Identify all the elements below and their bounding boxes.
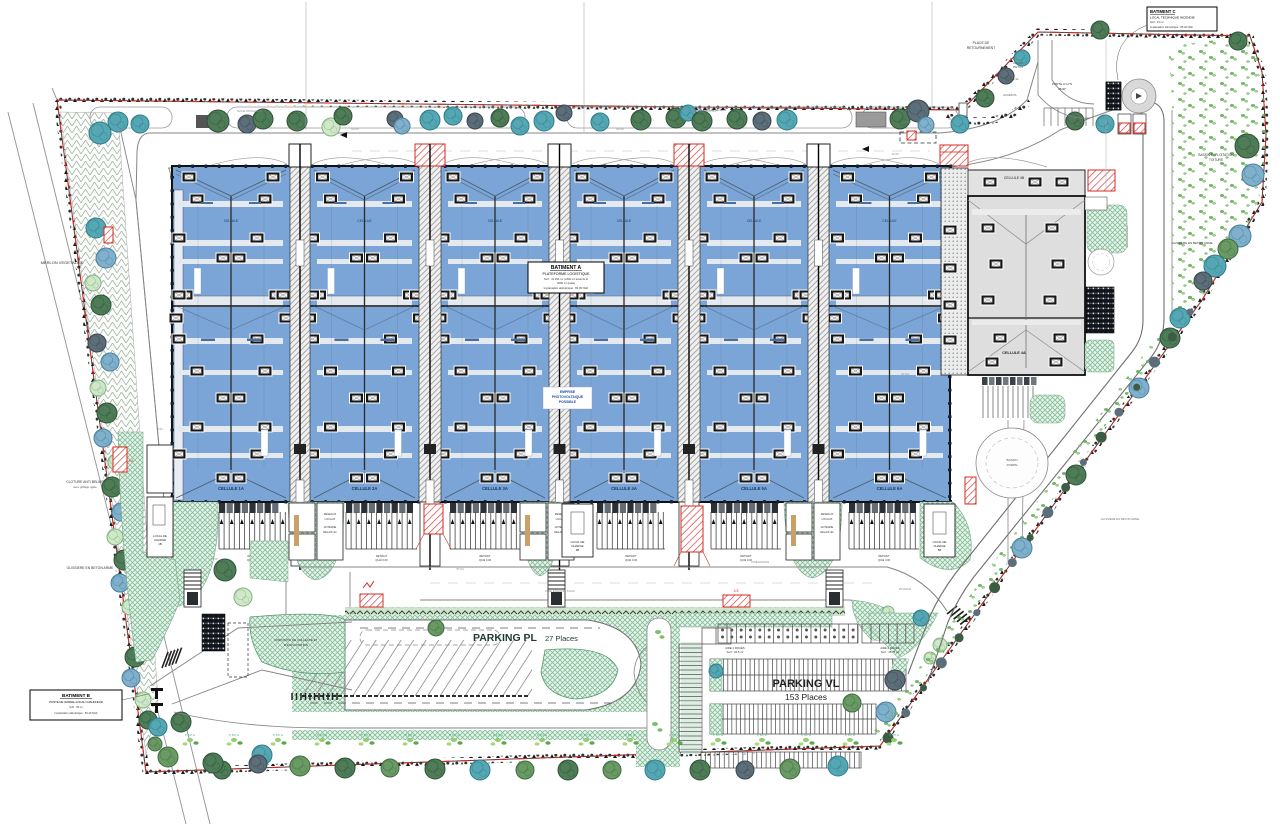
svg-text:PARKING VL: PARKING VL xyxy=(772,678,839,690)
svg-text:CELLULE: CELLULE xyxy=(617,219,631,223)
svg-text:13.60: 13.60 xyxy=(211,557,218,561)
svg-text:CELLULE 1A: CELLULE 1A xyxy=(218,486,244,491)
svg-text:57.04: 57.04 xyxy=(901,372,909,376)
svg-text:P 8 P A: P 8 P A xyxy=(493,733,503,737)
svg-text:LOCAUX: LOCAUX xyxy=(822,517,833,521)
svg-text:P 8 P A: P 8 P A xyxy=(757,733,767,737)
svg-text:ANTENNE: ANTENNE xyxy=(821,525,834,529)
svg-text:CELLULE: CELLULE xyxy=(882,219,896,223)
svg-text:POMPE: POMPE xyxy=(1007,463,1018,467)
svg-text:Implantation altimétrique : 83: Implantation altimétrique : 83.35 NGF xyxy=(544,286,589,290)
svg-text:CELLULE 4B: CELLULE 4B xyxy=(1004,176,1025,180)
svg-text:LOCAUX: LOCAUX xyxy=(325,517,336,521)
svg-text:CELLULE 4A: CELLULE 4A xyxy=(1002,351,1026,355)
svg-text:Implantation altimétrique : 85: Implantation altimétrique : 85.40 NGF xyxy=(1150,25,1194,29)
svg-text:P 8 P A: P 8 P A xyxy=(581,733,591,737)
svg-text:BATIMENT C: BATIMENT C xyxy=(1150,9,1176,14)
svg-text:BASSIN: BASSIN xyxy=(1006,458,1017,462)
svg-text:Implantation altimétrique : 83: Implantation altimétrique : 83.40 NGF xyxy=(54,711,98,715)
svg-text:Surf : 35 m²: Surf : 35 m² xyxy=(69,705,83,709)
svg-text:P 8 P A: P 8 P A xyxy=(669,733,679,737)
svg-text:TOITURE: TOITURE xyxy=(1209,158,1223,162)
svg-text:BASSIN EXPLOITATION: BASSIN EXPLOITATION xyxy=(1198,153,1234,157)
svg-text:PORTE A GYN: PORTE A GYN xyxy=(1052,82,1072,86)
svg-text:BATIMENT A: BATIMENT A xyxy=(551,265,582,271)
svg-text:RESEAUX: RESEAUX xyxy=(324,512,337,516)
svg-text:ACCES PL: ACCES PL xyxy=(1003,93,1017,97)
svg-text:CELLULE 4A: CELLULE 4A xyxy=(611,486,637,491)
svg-text:VOIE ENGINS - 6.00m: VOIE ENGINS - 6.00m xyxy=(545,589,576,593)
svg-text:GLISSIERE EN BETON ARME: GLISSIERE EN BETON ARME xyxy=(67,566,114,570)
svg-text:GLISSIERE EN BETON ARME: GLISSIERE EN BETON ARME xyxy=(1101,517,1140,521)
svg-text:EMPRISE: EMPRISE xyxy=(560,390,576,394)
svg-text:RELAIS 4G: RELAIS 4G xyxy=(820,530,833,534)
svg-text:P 8 P A: P 8 P A xyxy=(449,733,459,737)
svg-text:CELLULE: CELLULE xyxy=(357,219,371,223)
svg-text:P 8 P A: P 8 P A xyxy=(405,733,415,737)
svg-text:PLACE DE: PLACE DE xyxy=(973,41,991,45)
svg-text:NOUE PAYSAGERE: NOUE PAYSAGERE xyxy=(237,109,263,113)
svg-text:avec grillage rigide: avec grillage rigide xyxy=(73,485,97,489)
svg-text:CELLULE 3A: CELLULE 3A xyxy=(482,486,508,491)
svg-text:BASSIN EXPLOITATION: BASSIN EXPLOITATION xyxy=(685,109,716,113)
svg-text:RETRAIT: RETRAIT xyxy=(376,554,388,558)
svg-text:RELAIS 4G: RELAIS 4G xyxy=(323,530,336,534)
svg-text:QUAI 0.00: QUAI 0.00 xyxy=(878,558,891,562)
svg-text:RETRAIT: RETRAIT xyxy=(479,554,491,558)
svg-text:P 8 P A: P 8 P A xyxy=(713,733,723,737)
svg-text:ACCES VL: ACCES VL xyxy=(1005,77,1019,81)
svg-text:CELLULE 5A: CELLULE 5A xyxy=(741,486,767,491)
svg-text:P 8 P A: P 8 P A xyxy=(889,733,899,737)
svg-text:CELLULE: CELLULE xyxy=(488,219,502,223)
svg-text:CELLULE: CELLULE xyxy=(224,219,238,223)
svg-text:P 8 P A: P 8 P A xyxy=(273,733,283,737)
svg-text:4000 m² quais): 4000 m² quais) xyxy=(557,281,575,285)
svg-text:CELLULE: CELLULE xyxy=(747,219,761,223)
svg-text:QUAI 0.00: QUAI 0.00 xyxy=(479,558,492,562)
svg-text:GLISSIERE EN BETON ARME: GLISSIERE EN BETON ARME xyxy=(1171,241,1212,245)
svg-text:PARKING PL: PARKING PL xyxy=(473,632,538,644)
svg-text:POSSIBLE: POSSIBLE xyxy=(559,400,577,404)
svg-text:PASSAGE: PASSAGE xyxy=(899,587,911,591)
svg-text:4.5: 4.5 xyxy=(734,589,739,593)
svg-text:RETOURNEMENT: RETOURNEMENT xyxy=(967,46,996,50)
svg-text:VOIE ENGINS: VOIE ENGINS xyxy=(751,560,769,564)
svg-text:27 Places: 27 Places xyxy=(545,634,578,643)
svg-text:QUAI 0.00: QUAI 0.00 xyxy=(625,558,638,562)
svg-text:PIETON: PIETON xyxy=(1013,65,1023,69)
svg-text:57.04: 57.04 xyxy=(457,567,464,571)
svg-text:MERLON VEGETALISE: MERLON VEGETALISE xyxy=(41,260,84,265)
svg-text:LOCAL TECHNIQUE INCENDIE: LOCAL TECHNIQUE INCENDIE xyxy=(1150,16,1195,20)
svg-text:RETRAIT: RETRAIT xyxy=(878,554,890,558)
svg-text:P 8 P A: P 8 P A xyxy=(229,733,239,737)
svg-text:QUAI 0.00: QUAI 0.00 xyxy=(375,558,388,562)
svg-text:D'EXPLOITATION: D'EXPLOITATION xyxy=(284,643,308,647)
svg-text:4.5: 4.5 xyxy=(129,459,134,463)
svg-text:POSTE DE GARDE+LOCAL CHAUFFEUR: POSTE DE GARDE+LOCAL CHAUFFEUR xyxy=(49,700,103,704)
svg-text:RETRAIT: RETRAIT xyxy=(625,554,637,558)
svg-text:P 8 P A: P 8 P A xyxy=(361,733,371,737)
svg-text:P 8 P A: P 8 P A xyxy=(185,733,195,737)
svg-text:PLATEFORME LOGISTIQUE: PLATEFORME LOGISTIQUE xyxy=(542,272,590,276)
svg-text:P 8 P A: P 8 P A xyxy=(845,733,855,737)
svg-text:6.00: 6.00 xyxy=(349,611,355,615)
svg-text:ANTENNE: ANTENNE xyxy=(324,525,337,529)
svg-text:P 8 P A: P 8 P A xyxy=(537,733,547,737)
svg-text:12.00: 12.00 xyxy=(891,152,899,156)
svg-text:RESEAUX: RESEAUX xyxy=(821,512,834,516)
svg-text:62.00: 62.00 xyxy=(351,127,359,131)
svg-text:Surf : 18.75 m²: Surf : 18.75 m² xyxy=(881,650,900,654)
svg-text:52.00: 52.00 xyxy=(948,117,956,121)
svg-text:P 8 P A: P 8 P A xyxy=(801,733,811,737)
svg-text:Surf : 91 m²: Surf : 91 m² xyxy=(1150,20,1164,24)
svg-text:11.00: 11.00 xyxy=(1059,87,1066,91)
svg-text:153 Places: 153 Places xyxy=(785,692,827,702)
svg-text:P 8 P A: P 8 P A xyxy=(317,733,327,737)
svg-text:PHOTOVOLTAIQUE: PHOTOVOLTAIQUE xyxy=(552,395,584,399)
svg-text:CLOTURE ANTI BELIER: CLOTURE ANTI BELIER xyxy=(66,480,104,484)
svg-text:BATIMENT B: BATIMENT B xyxy=(62,693,91,698)
svg-text:Surf : 32.5 m²: Surf : 32.5 m² xyxy=(727,650,744,654)
svg-text:4.00: 4.00 xyxy=(157,427,163,431)
svg-text:3B: 3B xyxy=(576,548,580,552)
svg-text:CELLULE 6A: CELLULE 6A xyxy=(877,486,903,491)
svg-text:P 8 P A: P 8 P A xyxy=(625,733,635,737)
svg-text:RETRAIT: RETRAIT xyxy=(740,554,752,558)
svg-text:62.00: 62.00 xyxy=(905,120,912,124)
svg-text:CELLULE 2A: CELLULE 2A xyxy=(352,486,378,491)
svg-text:62.00: 62.00 xyxy=(616,127,624,131)
svg-text:Surf : 41.294 m² (+800 m² auve: Surf : 41.294 m² (+800 m² auvents et xyxy=(544,277,588,281)
svg-text:1B: 1B xyxy=(158,542,162,546)
svg-text:5B: 5B xyxy=(938,548,942,552)
svg-text:DISPOSITIF DE COLLECTE ET: DISPOSITIF DE COLLECTE ET xyxy=(274,638,317,642)
